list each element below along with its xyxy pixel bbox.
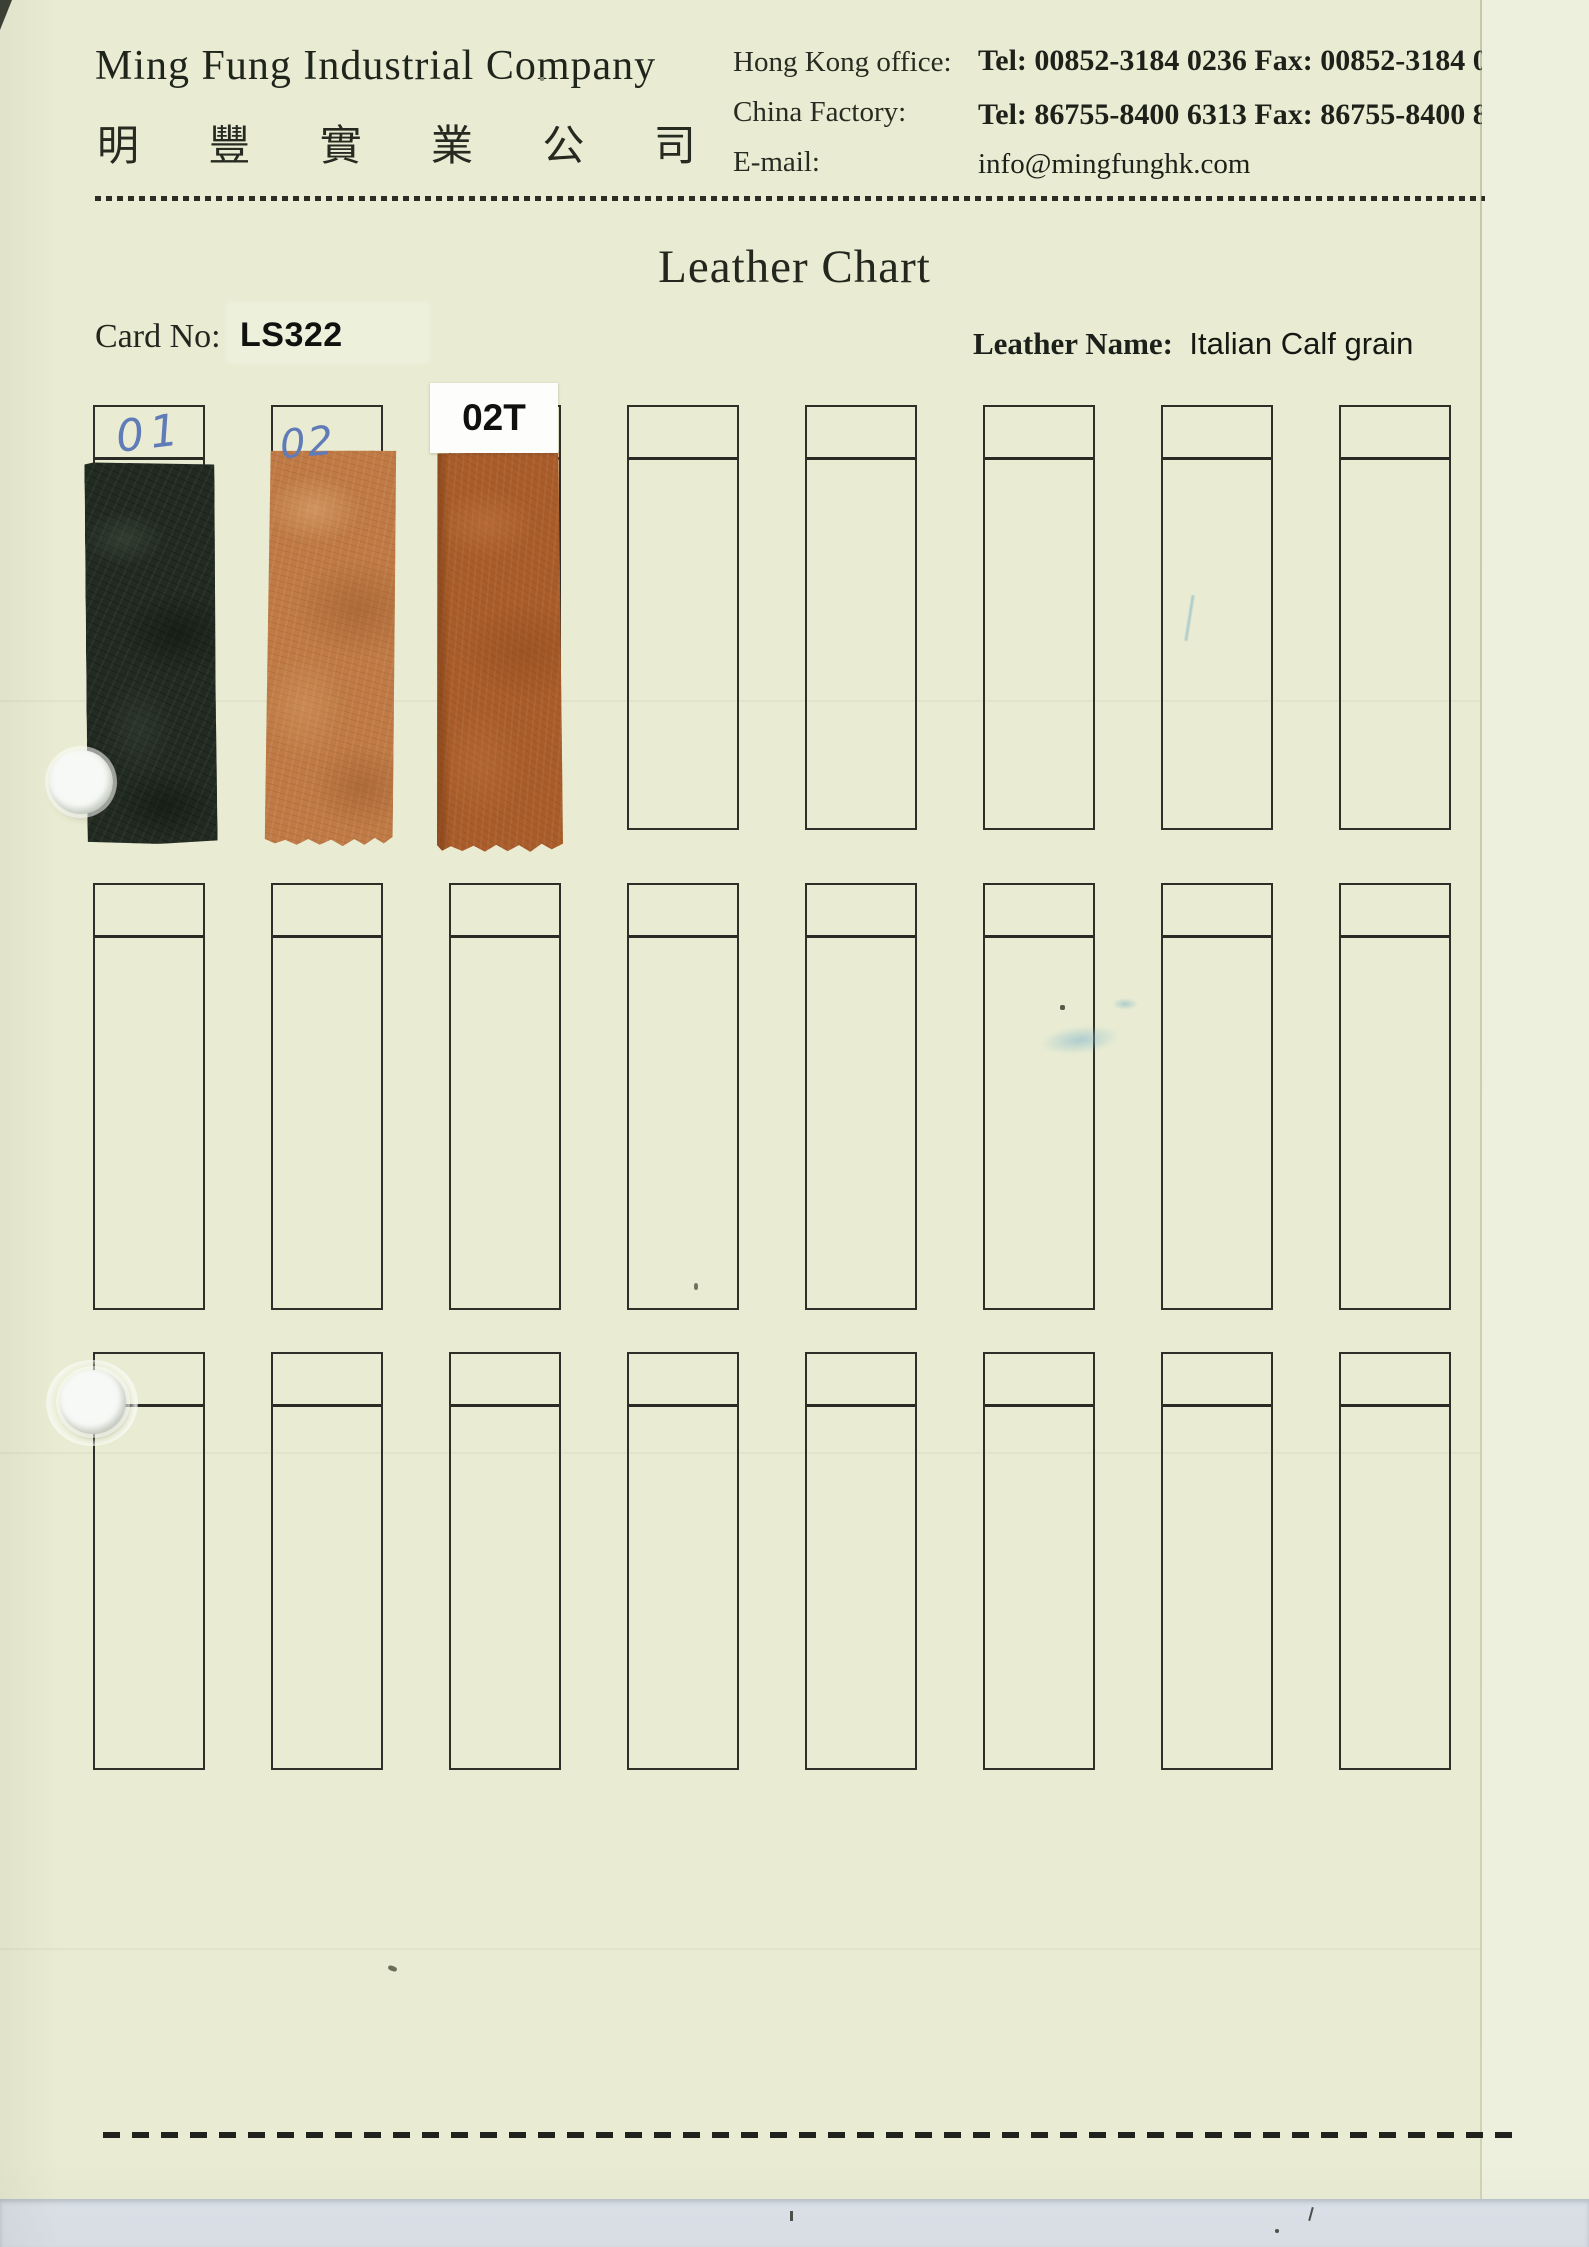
slot-label-box: [1341, 885, 1449, 938]
leather-name-row: Leather Name: Italian Calf grain: [973, 326, 1413, 362]
slot-row-2: [93, 883, 1451, 1310]
dust-speck: [387, 1965, 397, 1973]
dust-speck: [1308, 2207, 1314, 2221]
sample-slot-r1-c5: [805, 405, 917, 830]
footer-dashed-rule: [103, 2132, 1517, 2138]
punch-hole-bottom: [60, 1370, 126, 1434]
slot-label-box: [451, 885, 559, 938]
punch-hole-top: [49, 750, 113, 814]
sample-slot-r3-c2: [271, 1352, 383, 1770]
sample-slot-r2-c4: [627, 883, 739, 1310]
dust-speck: [1275, 2229, 1279, 2233]
slot-label-box: [451, 1354, 559, 1407]
slot-label-box: [629, 407, 737, 460]
sample-slot-r3-c6: [983, 1352, 1095, 1770]
slot-label-box: [1341, 1354, 1449, 1407]
sample-slot-r2-c8: [1339, 883, 1451, 1310]
handwritten-label-01: 01: [113, 404, 187, 463]
sample-slot-r3-c8: [1339, 1352, 1451, 1770]
slot-label-box: [985, 407, 1093, 460]
scan-corner-notch: [0, 0, 12, 30]
leather-sample-02: [265, 449, 398, 847]
slot-label-box: [629, 885, 737, 938]
sample-slot-r3-c3: [449, 1352, 561, 1770]
card-number-value: LS322: [240, 316, 343, 355]
leather-chart-scan: Ming Fung Industrial Company 明 豐 實 業 公 司…: [0, 0, 1589, 2247]
slot-label-box: [1163, 407, 1271, 460]
slot-label-box: [1341, 407, 1449, 460]
leather-name-value: Italian Calf grain: [1181, 326, 1414, 361]
page-title: Leather Chart: [0, 240, 1589, 294]
company-name-chinese: 明 豐 實 業 公 司: [97, 112, 724, 173]
leather-sample-02T: [435, 452, 563, 853]
scanner-background-strip: [0, 2199, 1589, 2247]
sample-slot-r3-c7: [1161, 1352, 1273, 1770]
slot-label-box: [807, 1354, 915, 1407]
sample-slot-r2-c2: [271, 883, 383, 1310]
china-factory-label: China Factory:: [733, 96, 906, 129]
slot-label-box: [273, 1354, 381, 1407]
scan-crease-line: [0, 1452, 1480, 1454]
slot-label-box: [273, 885, 381, 938]
sample-slot-r2-c7: [1161, 883, 1273, 1310]
email-address: info@mingfunghk.com: [978, 148, 1250, 181]
slot-label-box: [1163, 885, 1271, 938]
sample-slot-r2-c3: [449, 883, 561, 1310]
slot-label-box: [1163, 1354, 1271, 1407]
company-name-english: Ming Fung Industrial Company: [95, 42, 656, 90]
leather-name-label: Leather Name:: [973, 326, 1173, 361]
slot-label-box: [985, 1354, 1093, 1407]
china-tel-fax: Tel: 86755-8400 6313 Fax: 86755-8400 820…: [978, 98, 1533, 132]
slot-label-box: [985, 885, 1093, 938]
sample-slot-r1-c7: [1161, 405, 1273, 830]
sample-slot-r2-c5: [805, 883, 917, 1310]
card-number-label: Card No:: [95, 318, 221, 356]
slot-label-box: [807, 885, 915, 938]
slot-label-box: [807, 407, 915, 460]
handwritten-label-02: 02: [278, 418, 337, 469]
scan-crease-line: [0, 700, 1480, 702]
dust-speck: [540, 77, 544, 81]
hong-kong-tel-fax: Tel: 00852-3184 0236 Fax: 00852-3184 023…: [978, 44, 1533, 78]
dust-speck: [694, 1283, 698, 1290]
paper-right-edge-line: [1480, 0, 1482, 2200]
sample-slot-r1-c8: [1339, 405, 1451, 830]
header-dotted-rule: [95, 196, 1485, 201]
email-label: E-mail:: [733, 146, 820, 179]
sample-slot-r2-c1: [93, 883, 205, 1310]
sample-slot-r1-c4: [627, 405, 739, 830]
blue-ink-smudge-small: [1112, 998, 1138, 1010]
hong-kong-office-label: Hong Kong office:: [733, 46, 952, 79]
scan-crease-line: [0, 1948, 1480, 1950]
sample-slot-r2-c6: [983, 883, 1095, 1310]
paper-right-edge-strip: [1482, 0, 1589, 2200]
slot-row-3: [93, 1352, 1451, 1770]
slot-label-box: [629, 1354, 737, 1407]
sample-slot-r3-c4: [627, 1352, 739, 1770]
sample-slot-r3-c5: [805, 1352, 917, 1770]
slot-label-box: [95, 885, 203, 938]
dust-speck: [790, 2211, 793, 2221]
dust-speck: [1060, 1005, 1065, 1010]
printed-label-02T: 02T: [430, 383, 558, 453]
sample-slot-r1-c6: [983, 405, 1095, 830]
